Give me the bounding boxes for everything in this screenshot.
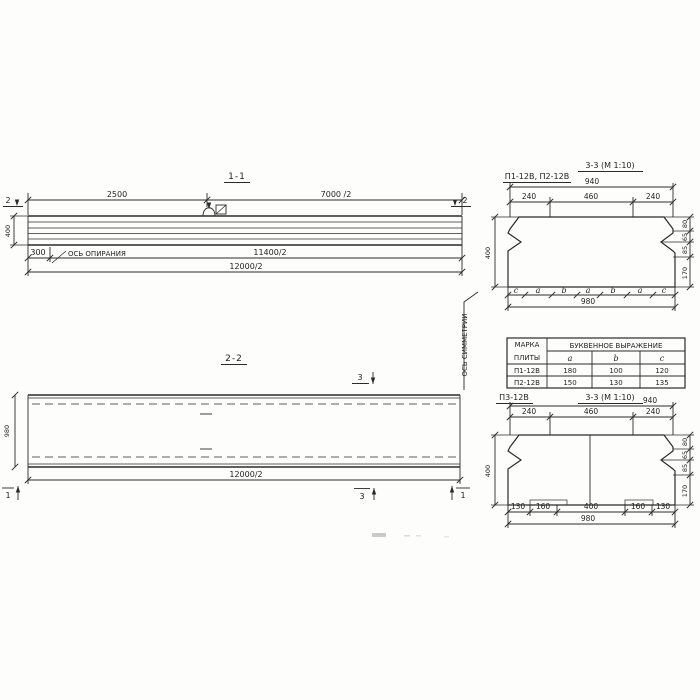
svg-text:1: 1 [460,491,465,500]
dim-170-b: 170 [681,485,689,497]
dim-980: 980 [3,425,11,437]
svg-text:П2-12В: П2-12В [514,379,540,387]
section-3-3-bottom-title: 3-3 (М 1:10) [585,393,634,402]
dim-460-b: 460 [584,407,599,416]
dim-460: 460 [584,192,599,201]
cross-section-body-bottom [508,435,675,505]
svg-text:135: 135 [655,379,668,387]
dim-980-top-section: 980 [581,297,596,306]
dim-80: 80 [681,220,689,228]
cross-section-body-top [508,217,675,287]
dim-400-bottom: 400 [584,502,599,511]
lifting-loop-icon [203,203,226,217]
section-3-3-bottom-view: П3-12В 3-3 (М 1:10) 940 240 460 240 130 … [484,393,694,528]
beam-elevation [28,216,462,245]
dim-12000-2: 12000/2 [229,262,262,271]
svg-text:1: 1 [5,491,10,500]
letter-b2: b [610,286,615,295]
mark-label-p3: П3-12В [499,393,529,402]
table-col-a: a [568,354,573,363]
blueprint-scan: 1-1 2500 7000 /2 2 2 [0,0,700,700]
dim-height-400: 400 [4,225,12,237]
dim-170: 170 [681,267,689,279]
svg-text:150: 150 [563,379,576,387]
table-header-span: БУКВЕННОЕ ВЫРАЖЕНИЕ [570,342,663,350]
section-3-3-top-title: 3-3 (М 1:10) [585,161,634,170]
dim-980-bottom-section: 980 [581,514,596,523]
dim-160-left: 160 [536,502,551,511]
axis-of-symmetry: ОСЬ СИММЕТРИИ [461,292,478,390]
svg-text:180: 180 [563,367,576,375]
cut-mark-3-top: 3 [352,372,375,384]
dim-65-b: 65 [681,451,689,459]
dim-400-left: 400 [484,247,492,259]
letter-b1: b [561,286,566,295]
svg-text:П1-12В: П1-12В [514,367,540,375]
letter-a1: a [536,286,541,295]
dim-160-right: 160 [631,502,646,511]
dim-12000-2-plan: 12000/2 [229,470,262,479]
table-row: П1-12В 180 100 120 [514,367,669,375]
section-1-1-view: 1-1 2500 7000 /2 2 2 [3,172,471,276]
dim-85: 85 [681,246,689,254]
drawing-canvas: 1-1 2500 7000 /2 2 2 [0,0,700,700]
section-2-2-view: 2-2 3 980 12000/ [2,292,478,501]
dim-940: 940 [585,177,600,186]
dim-2500: 2500 [107,190,127,199]
mark-label-p1-p2: П1-12В, П2-12В [505,172,569,181]
dim-240-left: 240 [522,192,537,201]
cut-mark-2-left: 2 [3,196,23,207]
letter-expression-table: МАРКА ПЛИТЫ БУКВЕННОЕ ВЫРАЖЕНИЕ a b c П1… [507,338,685,388]
scan-artifact [372,533,449,538]
table-row: П2-12В 150 130 135 [514,379,669,387]
cut-mark-3-bottom: 3 [354,488,376,501]
svg-text:100: 100 [609,367,622,375]
table-col-c: c [660,354,665,363]
letter-a3: a [638,286,643,295]
svg-text:2: 2 [462,196,467,205]
dim-300: 300 [30,248,45,257]
dim-240-left-b: 240 [522,407,537,416]
slab-plan [28,395,460,467]
dim-65: 65 [681,233,689,241]
dim-11400-2: 11400/2 [253,248,286,257]
letter-c1: c [514,286,519,295]
svg-text:ОСЬ СИММЕТРИИ: ОСЬ СИММЕТРИИ [461,313,469,376]
svg-text:130: 130 [609,379,622,387]
section-1-1-title: 1-1 [228,172,246,182]
cut-mark-1-right: 1 [450,486,470,500]
svg-text:3: 3 [359,492,364,501]
dim-400-left-b: 400 [484,465,492,477]
cut-mark-1-left: 1 [2,486,20,500]
dim-130-left: 130 [511,502,526,511]
dim-130-right: 130 [656,502,671,511]
section-3-3-top-view: 3-3 (М 1:10) П1-12В, П2-12В 940 240 460 … [484,161,694,311]
svg-text:3: 3 [357,373,362,382]
table-header-plity: ПЛИТЫ [514,354,540,362]
letter-a2: a [586,286,591,295]
axis-of-bearing-label: ОСЬ ОПИРАНИЯ [68,250,126,258]
dim-80-b: 80 [681,438,689,446]
svg-text:120: 120 [655,367,668,375]
table-header-marka: МАРКА [515,341,540,349]
table-col-b: b [613,354,618,363]
letter-c2: c [662,286,667,295]
dim-240-right: 240 [646,192,661,201]
section-2-2-title: 2-2 [225,354,243,364]
dim-940-bottom: 940 [643,396,658,405]
dim-7000-2: 7000 /2 [321,190,352,199]
svg-text:2: 2 [5,196,10,205]
dim-85-b: 85 [681,464,689,472]
dim-240-right-b: 240 [646,407,661,416]
